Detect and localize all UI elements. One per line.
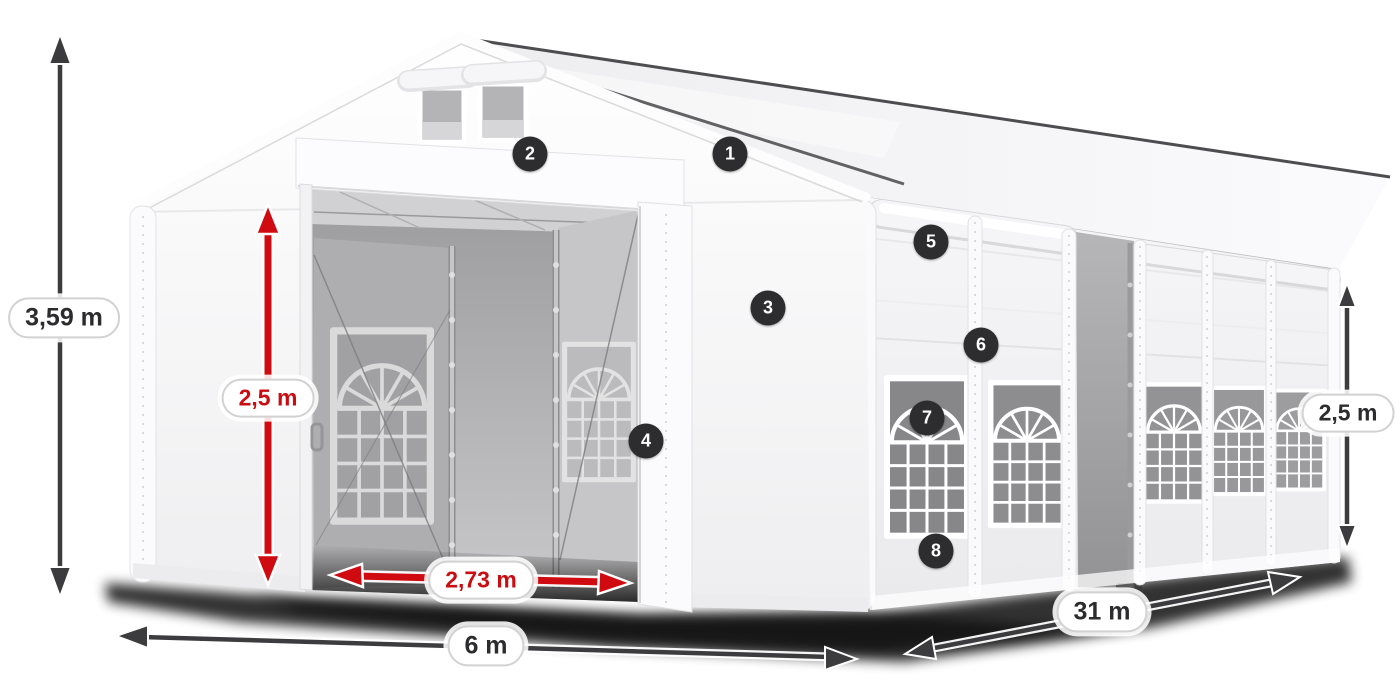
base-width-value: 6 m xyxy=(464,631,507,659)
marker-badge-4: 4 xyxy=(629,424,664,459)
marker-badge-8: 8 xyxy=(919,534,954,569)
side-height-value: 2,5 m xyxy=(1319,400,1378,426)
arch-window xyxy=(988,380,1066,528)
badge-number: 5 xyxy=(926,232,936,253)
marker-badge-3: 3 xyxy=(751,291,786,326)
total-height-label: 3,59 m xyxy=(8,297,120,338)
tent-dimensions-figure: 3,59 m 2,5 m 2,73 m 6 m 31 m 2,5 m 1 2 3… xyxy=(0,0,1400,700)
badge-number: 8 xyxy=(931,541,941,562)
marker-badge-6: 6 xyxy=(964,328,999,363)
vent-window xyxy=(472,70,536,140)
arch-window xyxy=(1210,386,1268,496)
marker-badge-2: 2 xyxy=(513,137,548,172)
entrance-width-value: 2,73 m xyxy=(445,567,517,593)
base-width-label: 6 m xyxy=(447,625,524,666)
badge-number: 7 xyxy=(922,408,932,429)
side-height-label: 2,5 m xyxy=(1302,394,1395,433)
entrance-opening xyxy=(310,187,640,602)
tent-illustration xyxy=(0,0,1400,700)
total-height-value: 3,59 m xyxy=(25,303,103,331)
entrance-height-value: 2,5 m xyxy=(239,385,298,411)
badge-number: 3 xyxy=(763,298,773,319)
badge-number: 1 xyxy=(725,144,735,165)
side-door-opening xyxy=(1076,232,1142,595)
badge-number: 2 xyxy=(525,144,535,165)
badge-number: 6 xyxy=(976,335,986,356)
entrance-height-label: 2,5 m xyxy=(222,379,315,418)
length-label: 31 m xyxy=(1057,591,1148,632)
length-value: 31 m xyxy=(1074,597,1131,625)
entrance-width-label: 2,73 m xyxy=(428,561,534,600)
arch-window xyxy=(1142,382,1206,504)
marker-badge-7: 7 xyxy=(910,401,945,436)
marker-badge-5: 5 xyxy=(914,225,949,260)
badge-number: 4 xyxy=(641,431,651,452)
marker-badge-1: 1 xyxy=(713,137,748,172)
